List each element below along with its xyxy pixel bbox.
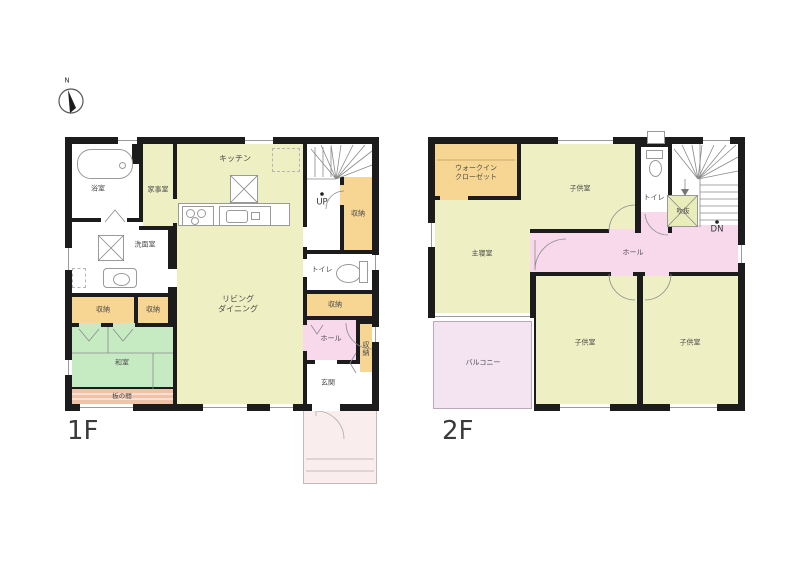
- label-kids-top: 子供室: [570, 184, 591, 193]
- door-opening-storage-stairs: [340, 185, 344, 205]
- window-kids-right-bottom: [670, 404, 717, 411]
- compass-north-label: N: [64, 76, 69, 85]
- window-bedroom-balcony: [435, 313, 530, 319]
- room-stairs-landing: [307, 177, 340, 250]
- porch-1f: [303, 411, 377, 484]
- label-void: 吹抜: [677, 207, 690, 215]
- label-bath: 浴室: [91, 184, 105, 193]
- door-opening-oshiire-1: [79, 323, 101, 327]
- label-dn: DN: [711, 224, 724, 235]
- door-opening-kids-right: [645, 272, 669, 276]
- label-genkan: 玄関: [321, 378, 335, 387]
- door-opening-kids-top: [609, 229, 635, 233]
- door-opening-utility: [173, 199, 177, 223]
- door-opening-genkan: [315, 360, 337, 364]
- door-opening-oshiire-2: [113, 323, 135, 327]
- door-opening-wic: [440, 196, 468, 200]
- plan-2f: ウォークイン クローゼット 子供室 トイレ 吹抜 DN 主寝室 ホール バルコニ…: [428, 137, 745, 411]
- door-opening-hall: [303, 325, 307, 351]
- label-kids-left: 子供室: [575, 338, 596, 347]
- washroom-dashed-space: [72, 268, 86, 288]
- label-toilet-2f: トイレ: [644, 193, 665, 202]
- toilet-icon-2f: [649, 160, 662, 177]
- label-living-dining: リビング ダイニング: [218, 295, 258, 316]
- window-bedroom-left: [428, 223, 435, 247]
- toilet-tank-1f: [359, 261, 368, 283]
- label-itanoma: 板の間: [112, 392, 132, 400]
- label-washroom: 洗面室: [135, 240, 156, 249]
- label-storage-mid: 収納: [328, 300, 342, 309]
- door-opening-bedroom: [530, 240, 534, 270]
- toilet-icon-1f: [336, 264, 361, 283]
- label-storage-entry: 収納: [361, 341, 371, 357]
- label-master-bedroom: 主寝室: [472, 249, 493, 258]
- label-toilet-1f: トイレ: [312, 265, 333, 274]
- bathtub-drain-icon: [119, 162, 126, 169]
- label-storage-b: 収納: [146, 305, 160, 314]
- window-itanoma-bottom: [80, 404, 133, 411]
- plan-1f: 浴室 家事室 キッチン 洗面室 収納 収納 リビング ダイニング 収納 UP ト…: [65, 137, 379, 411]
- room-washitsu: [72, 327, 173, 387]
- door-opening-entrance-door: [312, 404, 340, 411]
- label-utility: 家事室: [148, 185, 169, 194]
- washroom-sink-bowl: [113, 273, 130, 286]
- window-washroom-left: [65, 248, 72, 270]
- door-opening-landing: [303, 227, 307, 247]
- window-toilet-right: [372, 255, 379, 270]
- label-washitsu: 和室: [115, 358, 129, 367]
- label-hall-1f: ホール: [321, 334, 342, 343]
- wall-under-utility: [139, 226, 177, 230]
- window-toilet-bump: [647, 131, 665, 144]
- label-storage-a: 収納: [96, 305, 110, 314]
- door-opening-toilet-1f: [303, 259, 307, 277]
- compass-icon: [50, 74, 92, 118]
- bathtub-icon: [77, 149, 133, 179]
- washing-machine-icon: [98, 235, 124, 261]
- wall-stub-bath: [132, 144, 140, 164]
- window-washitsu-left: [65, 360, 72, 375]
- window-bath-top: [118, 137, 137, 144]
- label-storage-stairs: 収納: [351, 209, 365, 218]
- window-living-bottom-1: [203, 404, 247, 411]
- porch-linework: [304, 411, 376, 483]
- window-living-bottom-2: [270, 404, 293, 411]
- refrigerator-space: [272, 148, 300, 172]
- label-hall-2f: ホール: [623, 248, 644, 257]
- label-balcony: バルコニー: [466, 358, 501, 367]
- label-kids-right: 子供室: [680, 338, 701, 347]
- window-hall-right: [372, 327, 379, 342]
- label-walkin-closet: ウォークイン クローゼット: [455, 164, 497, 182]
- kitchen-hatch-box: [230, 175, 258, 203]
- window-kitchen-top: [245, 137, 273, 144]
- window-kids-left-bottom: [560, 404, 610, 411]
- window-hall-right: [738, 245, 745, 263]
- window-stairs-top-wall: [703, 137, 730, 144]
- stove-icon: [182, 206, 214, 226]
- kitchen-sink-icon: [219, 206, 271, 226]
- door-opening-bath: [101, 218, 127, 222]
- window-kids-top-wall: [558, 137, 613, 144]
- kitchen-counter: [178, 203, 290, 226]
- floor-label-1f: 1F: [67, 416, 99, 446]
- label-kitchen: キッチン: [219, 154, 251, 164]
- room-stairs-top: [307, 144, 372, 177]
- door-opening-washroom: [168, 269, 177, 287]
- door-opening-kids-left: [611, 272, 633, 276]
- toilet-tank-2f: [646, 150, 663, 159]
- label-up: UP: [316, 197, 327, 208]
- washroom-sink-icon: [103, 268, 137, 288]
- floor-label-2f: 2F: [442, 416, 474, 446]
- floorplan-page: N: [0, 0, 800, 570]
- hall-patch-under-toilet: [641, 212, 668, 233]
